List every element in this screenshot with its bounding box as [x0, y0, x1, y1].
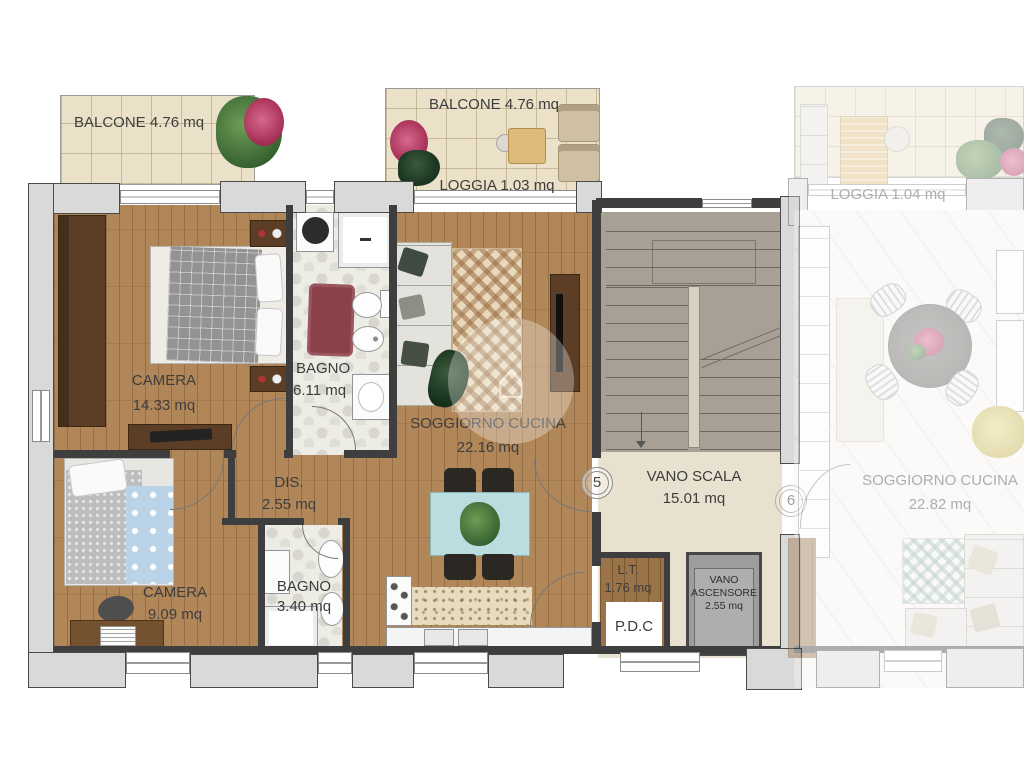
floor-strip: [788, 538, 816, 658]
sofa-pillow: [910, 612, 938, 639]
room-label: LOGGIA 1.04 mq: [808, 186, 968, 204]
side-table: [884, 126, 910, 152]
plant-icon: [908, 344, 926, 360]
living-room-rug: [902, 538, 968, 604]
window: [884, 650, 942, 672]
flower-icon: [1000, 148, 1024, 176]
room-area: 22.82 mq: [840, 496, 1024, 514]
floor-plan: VANO ASCENSORE 2.55 mq P.D.C: [0, 0, 1024, 768]
pillar: [946, 648, 1024, 688]
pillar: [816, 650, 880, 688]
unit-6-faded-area: LOGGIA 1.04 mq SOGGIORNO CUCINA 22.82 mq: [0, 0, 1024, 768]
plant-icon: [972, 406, 1024, 458]
appliance: [996, 320, 1024, 412]
room-label: SOGGIORNO CUCINA: [840, 472, 1024, 490]
plant-icon: [956, 140, 1004, 180]
appliance: [996, 250, 1024, 314]
